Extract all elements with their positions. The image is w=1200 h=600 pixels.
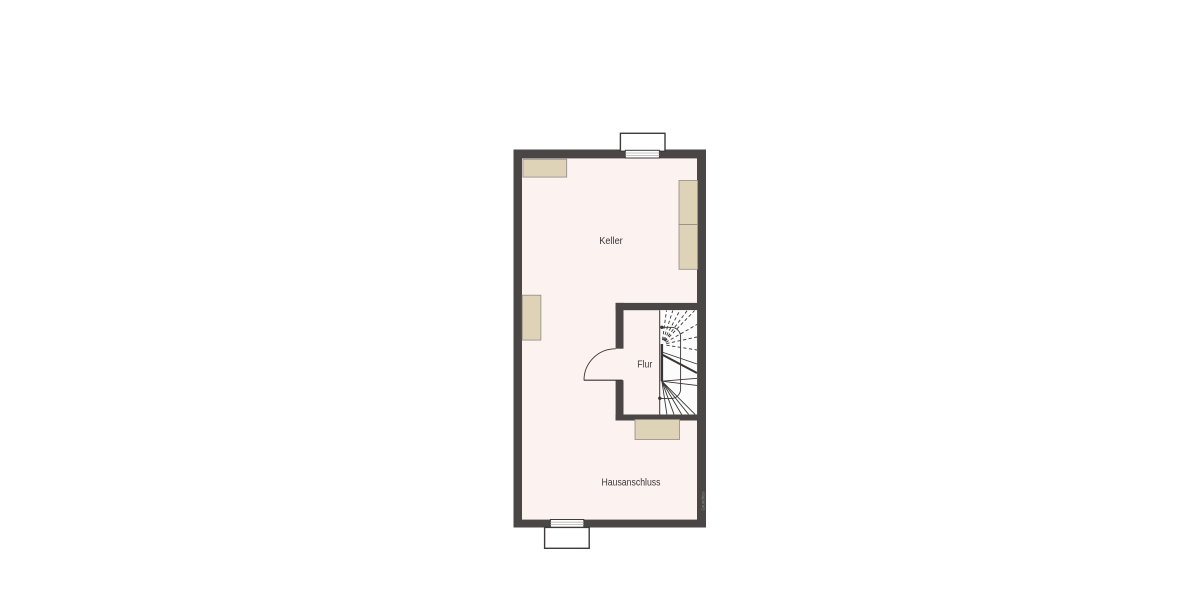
svg-text:Hausanschluss: Hausanschluss [602, 478, 661, 489]
svg-text:Grundriss: Grundriss [700, 491, 705, 511]
svg-text:Flur: Flur [637, 360, 653, 371]
svg-text:Keller: Keller [599, 236, 623, 247]
